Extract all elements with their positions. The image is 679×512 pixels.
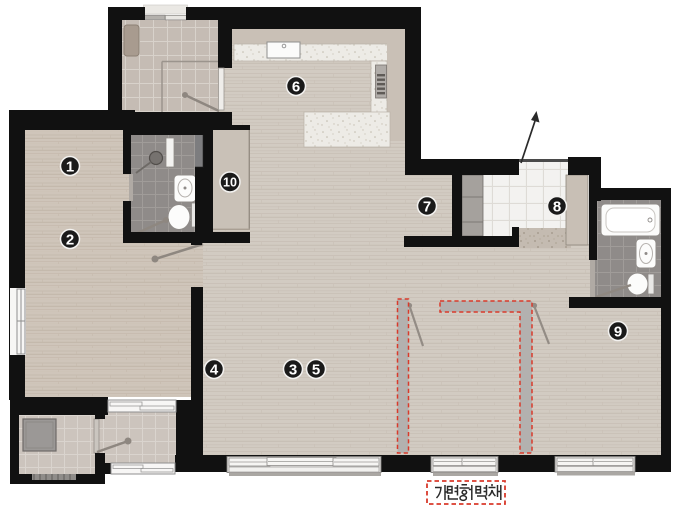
svg-text:5: 5 <box>312 361 320 378</box>
svg-text:6: 6 <box>292 78 300 95</box>
svg-text:4: 4 <box>210 361 219 378</box>
svg-text:8: 8 <box>553 198 561 215</box>
svg-text:2: 2 <box>66 231 74 248</box>
svg-text:3: 3 <box>289 361 297 378</box>
svg-text:7: 7 <box>423 198 431 215</box>
svg-text:1: 1 <box>66 158 74 175</box>
svg-text:10: 10 <box>223 176 237 190</box>
svg-text:9: 9 <box>614 323 622 340</box>
